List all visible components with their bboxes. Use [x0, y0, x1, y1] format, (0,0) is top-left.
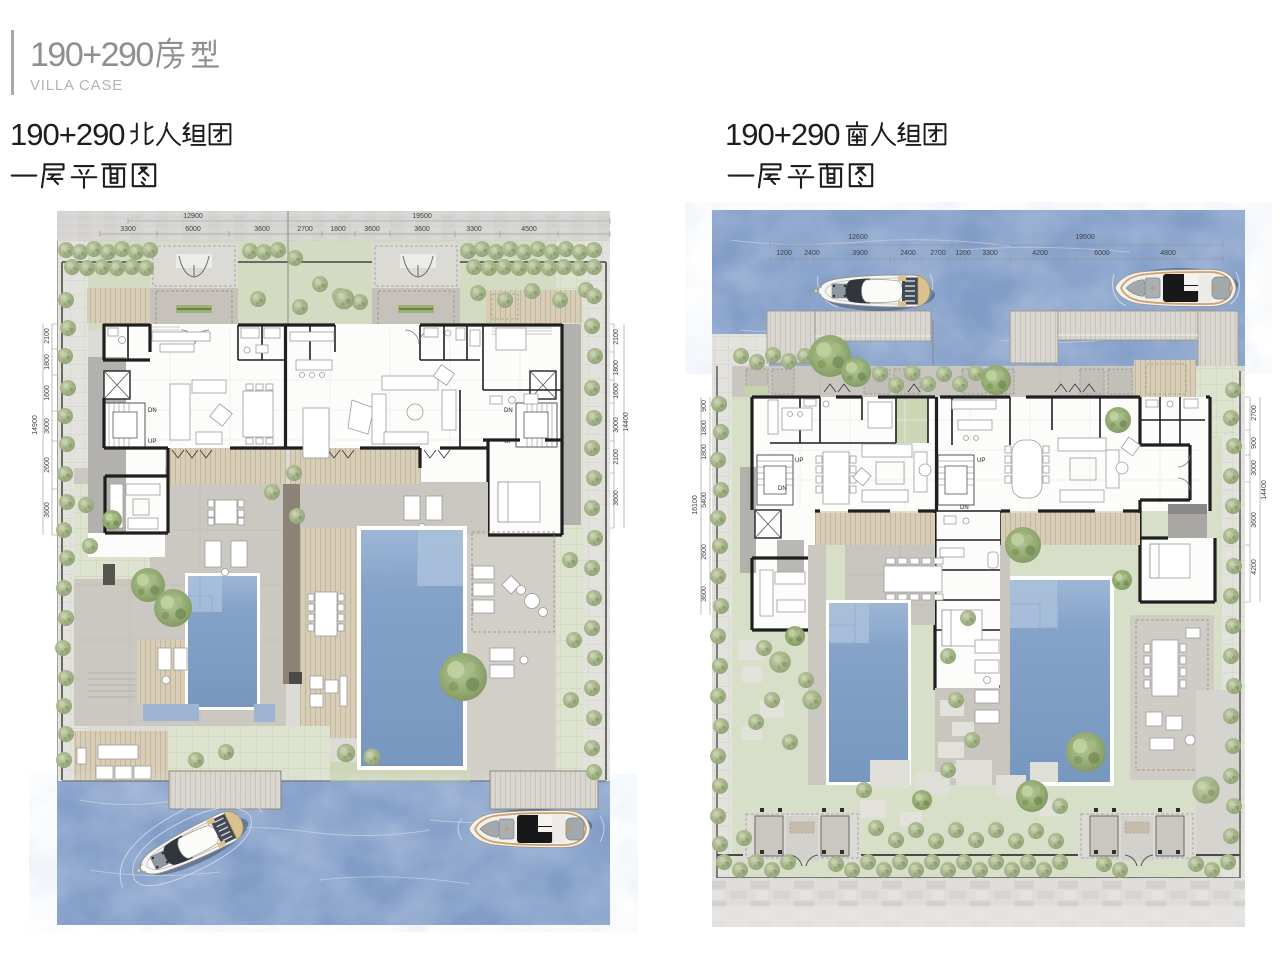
svg-text:4800: 4800 [1160, 250, 1176, 257]
svg-text:19500: 19500 [1075, 234, 1095, 241]
svg-text:UP: UP [795, 458, 803, 464]
svg-text:3600: 3600 [701, 586, 708, 602]
svg-text:14900: 14900 [32, 415, 39, 435]
svg-text:3600: 3600 [1251, 512, 1258, 528]
svg-text:2700: 2700 [930, 250, 946, 257]
svg-text:DN: DN [778, 486, 787, 492]
svg-text:3000: 3000 [44, 418, 51, 434]
svg-text:3000: 3000 [1251, 460, 1258, 476]
svg-text:1200: 1200 [955, 250, 971, 257]
svg-text:3600: 3600 [414, 226, 430, 233]
svg-text:UP: UP [148, 439, 156, 445]
svg-text:DN: DN [504, 408, 513, 414]
svg-text:3300: 3300 [982, 250, 998, 257]
svg-text:5400: 5400 [701, 492, 708, 508]
svg-text:2700: 2700 [297, 226, 313, 233]
svg-text:3600: 3600 [254, 226, 270, 233]
svg-text:2400: 2400 [900, 250, 916, 257]
svg-text:2600: 2600 [701, 544, 708, 560]
svg-text:4200: 4200 [1251, 559, 1258, 575]
svg-text:19500: 19500 [412, 213, 432, 220]
svg-text:1800: 1800 [701, 420, 708, 436]
svg-text:1600: 1600 [44, 385, 51, 401]
svg-text:190+290: 190+290 [10, 117, 125, 152]
svg-text:14400: 14400 [1261, 480, 1268, 500]
svg-text:900: 900 [701, 400, 708, 412]
svg-text:190+290: 190+290 [725, 117, 840, 152]
svg-text:DN: DN [960, 505, 969, 511]
svg-text:2600: 2600 [44, 457, 51, 473]
svg-text:190+290: 190+290 [30, 36, 153, 74]
svg-text:6000: 6000 [1094, 250, 1110, 257]
svg-text:3300: 3300 [466, 226, 482, 233]
svg-text:DN: DN [148, 408, 157, 414]
svg-text:3900: 3900 [852, 250, 868, 257]
svg-text:3300: 3300 [120, 226, 136, 233]
svg-text:4200: 4200 [1032, 250, 1048, 257]
svg-text:1200: 1200 [776, 250, 792, 257]
svg-text:1800: 1800 [330, 226, 346, 233]
svg-text:1800: 1800 [44, 354, 51, 370]
svg-text:12600: 12600 [848, 234, 868, 241]
svg-text:2700: 2700 [1251, 405, 1258, 421]
svg-text:2400: 2400 [804, 250, 820, 257]
svg-text:VILLA CASE: VILLA CASE [30, 77, 123, 94]
svg-text:2100: 2100 [44, 328, 51, 344]
svg-text:3600: 3600 [364, 226, 380, 233]
svg-text:4500: 4500 [521, 226, 537, 233]
svg-text:900: 900 [1251, 437, 1258, 449]
svg-text:UP: UP [977, 458, 985, 464]
svg-text:16100: 16100 [692, 495, 699, 515]
svg-text:1800: 1800 [701, 444, 708, 460]
svg-text:3600: 3600 [44, 502, 51, 518]
svg-text:12900: 12900 [183, 213, 203, 220]
svg-text:6000: 6000 [185, 226, 201, 233]
